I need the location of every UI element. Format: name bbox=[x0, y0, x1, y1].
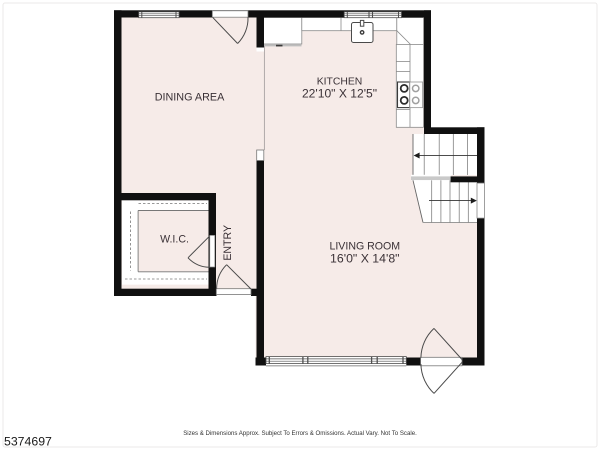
svg-text:16'0" X 14'8": 16'0" X 14'8" bbox=[330, 251, 400, 265]
svg-text:22'10" X 12'5": 22'10" X 12'5" bbox=[302, 86, 377, 100]
svg-text:ENTRY: ENTRY bbox=[222, 225, 234, 261]
svg-text:W.I.C.: W.I.C. bbox=[160, 233, 189, 245]
svg-text:DINING AREA: DINING AREA bbox=[155, 92, 225, 104]
svg-text:Sizes & Dimensions Approx. Sub: Sizes & Dimensions Approx. Subject To Er… bbox=[183, 430, 417, 437]
svg-text:5374697: 5374697 bbox=[4, 435, 52, 449]
